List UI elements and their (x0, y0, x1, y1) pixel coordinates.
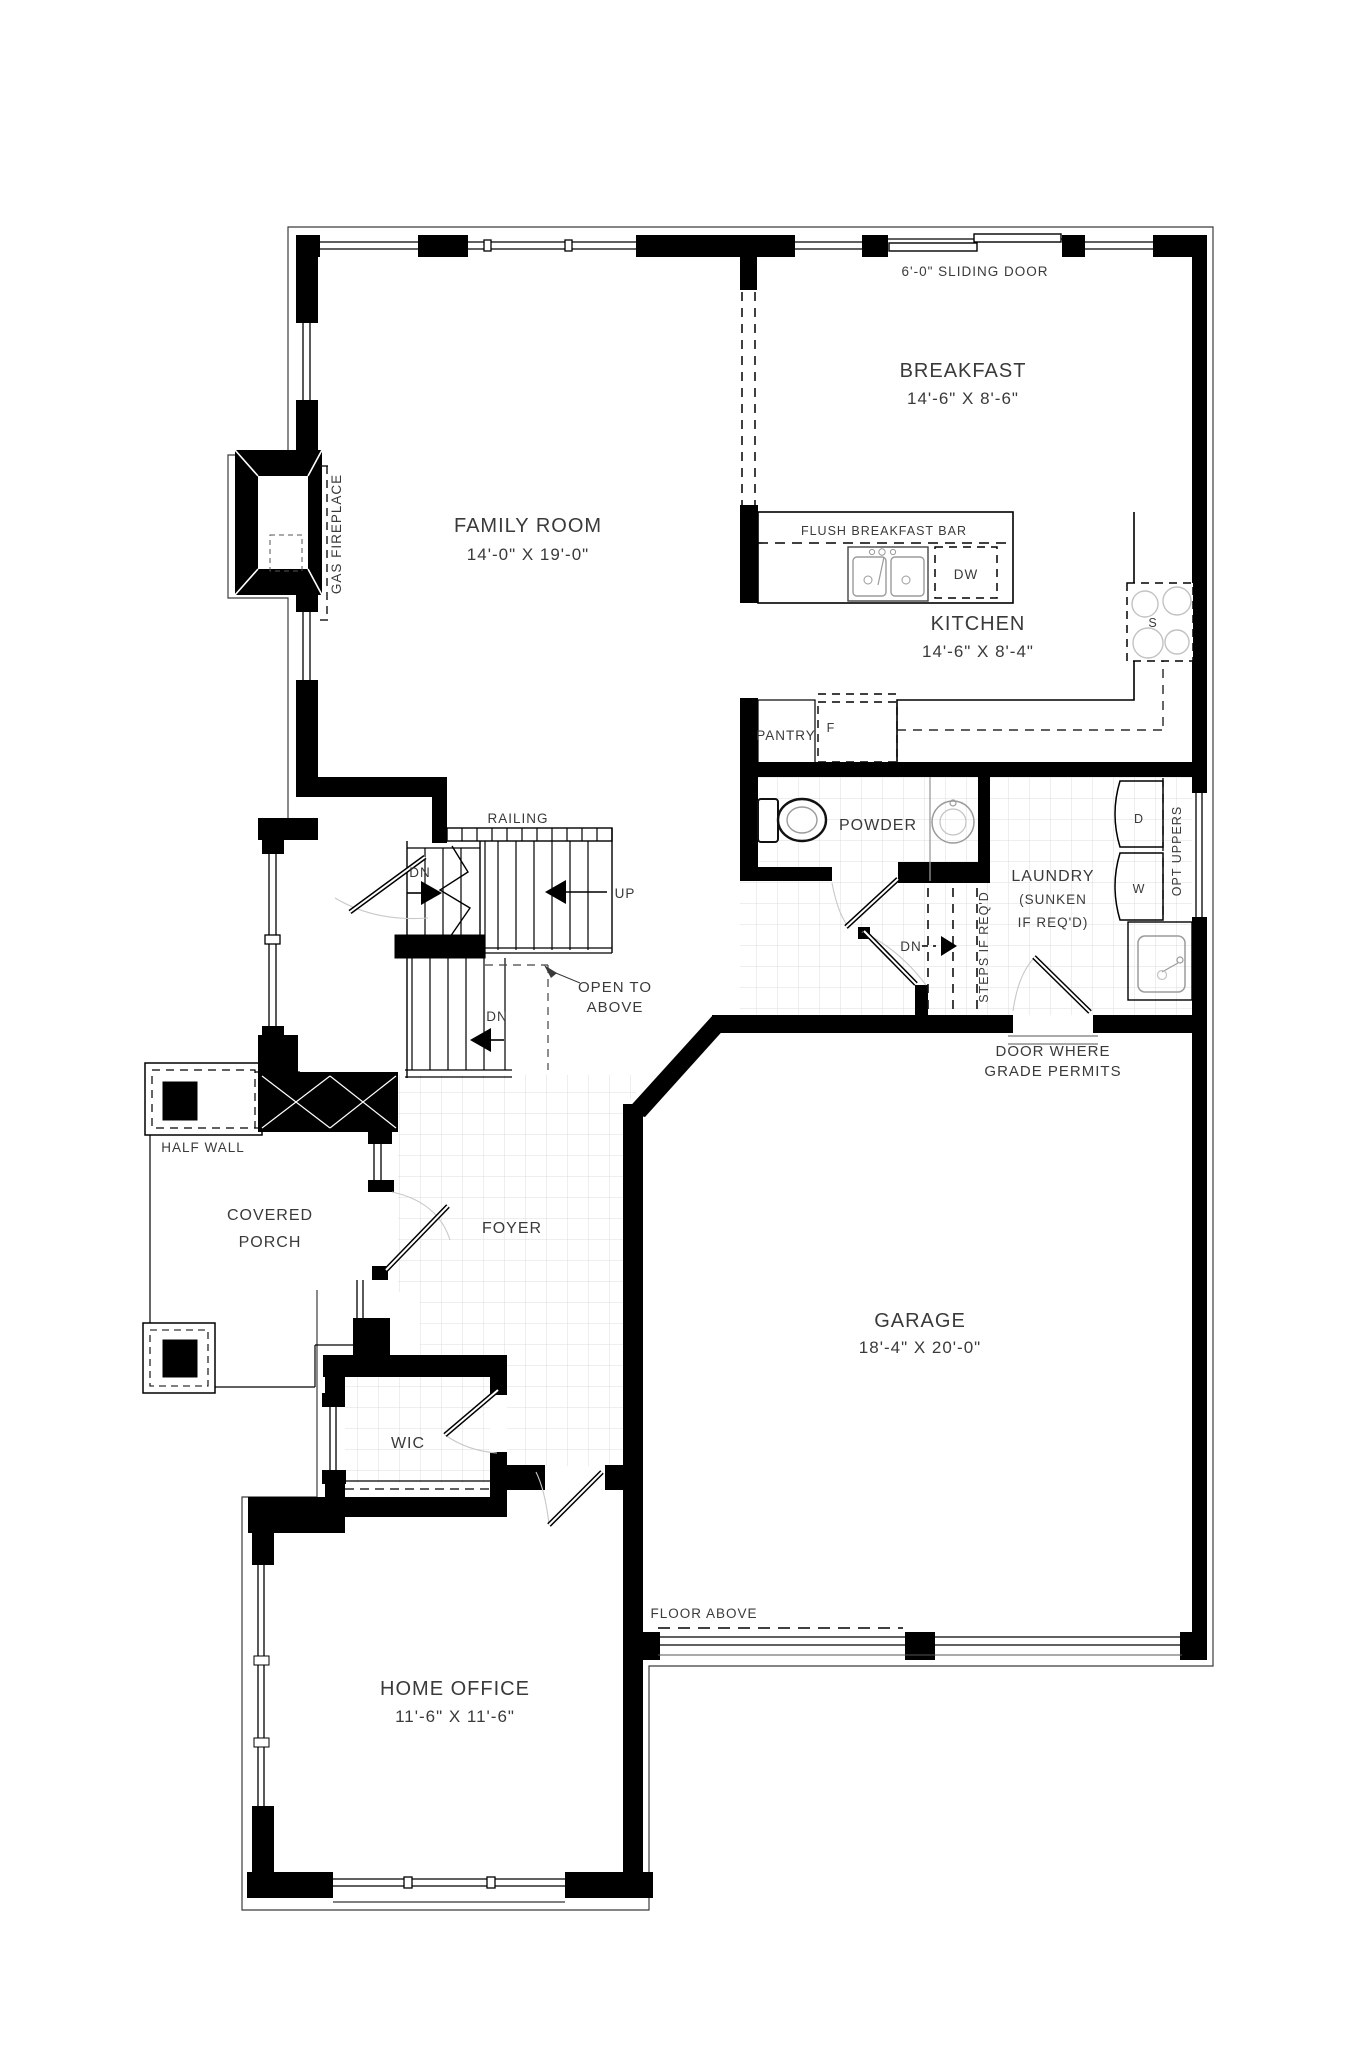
open-to-label: OPEN TO (578, 979, 652, 996)
stove-icon (1127, 583, 1193, 661)
family-room-label: FAMILY ROOM (454, 515, 602, 537)
fireplace-icon (235, 450, 330, 620)
grade-permits-label: GRADE PERMITS (984, 1063, 1121, 1080)
floor-plan-sheet: FAMILY ROOM 14'-0" X 19'-0" BREAKFAST 14… (0, 0, 1366, 2048)
kitchen-counters (758, 512, 1163, 765)
up-arrow-icon (545, 880, 566, 904)
railing-label: RAILING (487, 811, 548, 826)
covered-porch-label-2: PORCH (239, 1234, 302, 1251)
dryer-label: D (1134, 812, 1144, 826)
floor-plan-drawing: FAMILY ROOM 14'-0" X 19'-0" BREAKFAST 14… (0, 0, 1366, 2048)
floor-above-label: FLOOR ABOVE (650, 1606, 757, 1621)
home-office-dims: 11'-6" X 11'-6" (395, 1707, 515, 1726)
breakfast-label: BREAKFAST (900, 360, 1027, 382)
garage-dims: 18'-4" X 20'-0" (859, 1338, 981, 1357)
kitchen-sink-icon (848, 547, 928, 601)
dn-arrow-icon (421, 881, 442, 905)
pantry-label: PANTRY (756, 728, 816, 743)
dn-lower-arrow-icon (470, 1028, 491, 1052)
dn-steps-label: DN (900, 939, 922, 954)
washer-label: W (1133, 882, 1146, 896)
gas-fireplace-label: GAS FIREPLACE (329, 474, 344, 594)
dn-upper-label: DN (409, 865, 431, 880)
stove-label: S (1148, 616, 1157, 630)
dn-lower-label: DN (486, 1009, 508, 1024)
up-label: UP (615, 886, 636, 901)
home-office-label: HOME OFFICE (380, 1678, 530, 1700)
wic-label: WIC (391, 1435, 425, 1452)
toilet-icon (758, 799, 826, 842)
foyer-label: FOYER (482, 1220, 542, 1237)
fridge-label: F (827, 721, 836, 735)
steps-if-reqd-label: STEPS IF REQ'D (977, 891, 991, 1003)
flush-breakfast-bar-label: FLUSH BREAKFAST BAR (801, 524, 967, 538)
half-wall-label: HALF WALL (161, 1140, 245, 1155)
above-label: ABOVE (587, 999, 644, 1016)
laundry-note-2: IF REQ'D) (1018, 915, 1089, 930)
garage-label: GARAGE (874, 1310, 966, 1332)
laundry-label: LAUNDRY (1011, 868, 1094, 885)
laundry-note-1: (SUNKEN (1019, 892, 1087, 907)
kitchen-label: KITCHEN (931, 613, 1026, 635)
powder-label: POWDER (839, 817, 917, 834)
opt-uppers-label: OPT UPPERS (1170, 806, 1184, 896)
sliding-door-label: 6'-0" SLIDING DOOR (902, 264, 1049, 279)
dishwasher-label: DW (954, 567, 979, 582)
door-where-label: DOOR WHERE (996, 1043, 1111, 1060)
porch-column-icon (163, 1082, 197, 1120)
covered-porch-label-1: COVERED (227, 1207, 313, 1224)
porch-column-icon (163, 1340, 197, 1377)
kitchen-dims: 14'-6" X 8'-4" (922, 642, 1034, 661)
family-room-dims: 14'-0" X 19'-0" (467, 545, 589, 564)
open-to-above-leader-icon (544, 965, 557, 978)
breakfast-dims: 14'-6" X 8'-6" (907, 389, 1019, 408)
sliding-door-icon (888, 234, 1062, 251)
